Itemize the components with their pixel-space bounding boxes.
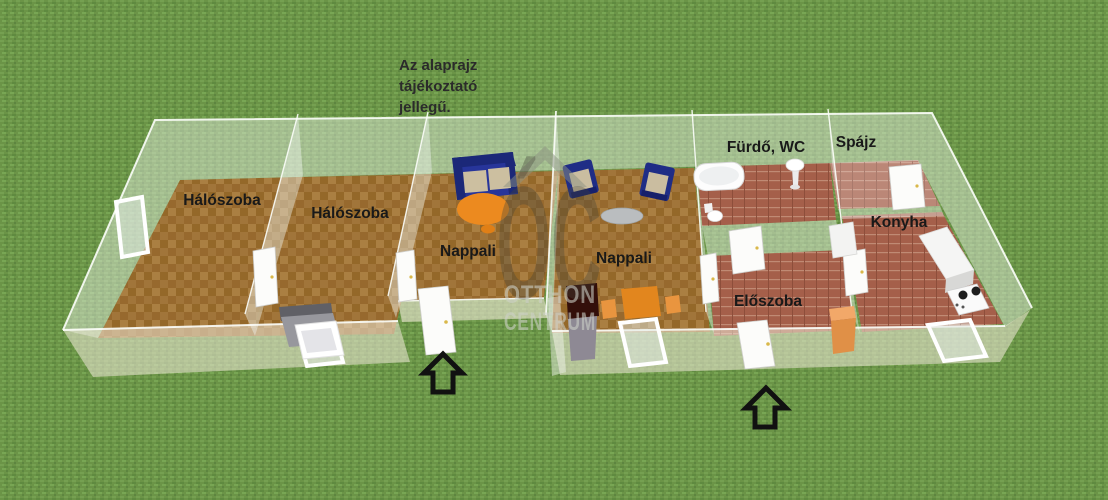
label-kitchen: Konyha <box>871 214 928 231</box>
door-handle <box>755 246 758 249</box>
pantry-door <box>889 164 925 210</box>
kitchen-cabinet <box>829 222 857 258</box>
bathtub <box>693 162 744 192</box>
watermark-name-line1: OTTHON <box>504 281 596 309</box>
label-pantry: Spájz <box>836 134 877 151</box>
disclaimer-line-2: tájékoztató <box>399 78 477 95</box>
disclaimer-line-1: Az alaprajz <box>399 57 477 74</box>
label-hallway: Előszoba <box>734 293 802 310</box>
label-living2: Nappali <box>596 250 652 267</box>
bedroom1-left-window <box>116 197 148 257</box>
door-handle <box>766 342 770 346</box>
floorplan-canvas: ÓC OTTHON CENTRUM Hálószoba Hálószoba Na… <box>0 0 1108 500</box>
door-handle <box>270 275 273 278</box>
label-bedroom1: Hálószoba <box>183 192 261 209</box>
label-bathroom: Fürdő, WC <box>727 139 805 156</box>
disclaimer-line-3: jellegű. <box>398 99 451 116</box>
watermark: ÓC OTTHON CENTRUM <box>497 146 602 336</box>
door-handle <box>711 277 714 280</box>
living2-hallway-door <box>700 253 719 304</box>
watermark-name-line2: CENTRUM <box>504 308 596 336</box>
floorplan-image: ÓC OTTHON CENTRUM Hálószoba Hálószoba Na… <box>0 0 1108 500</box>
gray-table <box>601 208 643 224</box>
bathroom-door <box>729 226 765 274</box>
door-handle <box>444 320 448 324</box>
wall-bathroom-hallway <box>702 220 842 256</box>
door-handle <box>409 275 412 278</box>
hall-cabinet <box>829 306 856 354</box>
bedroom-connecting-door <box>253 247 278 307</box>
label-bedroom2: Hálószoba <box>311 205 389 222</box>
door-handle <box>860 270 863 273</box>
door-handle <box>915 184 918 187</box>
bedroom2-living1-door <box>396 250 417 302</box>
living2-front-window <box>620 319 666 366</box>
label-living1: Nappali <box>440 243 496 260</box>
